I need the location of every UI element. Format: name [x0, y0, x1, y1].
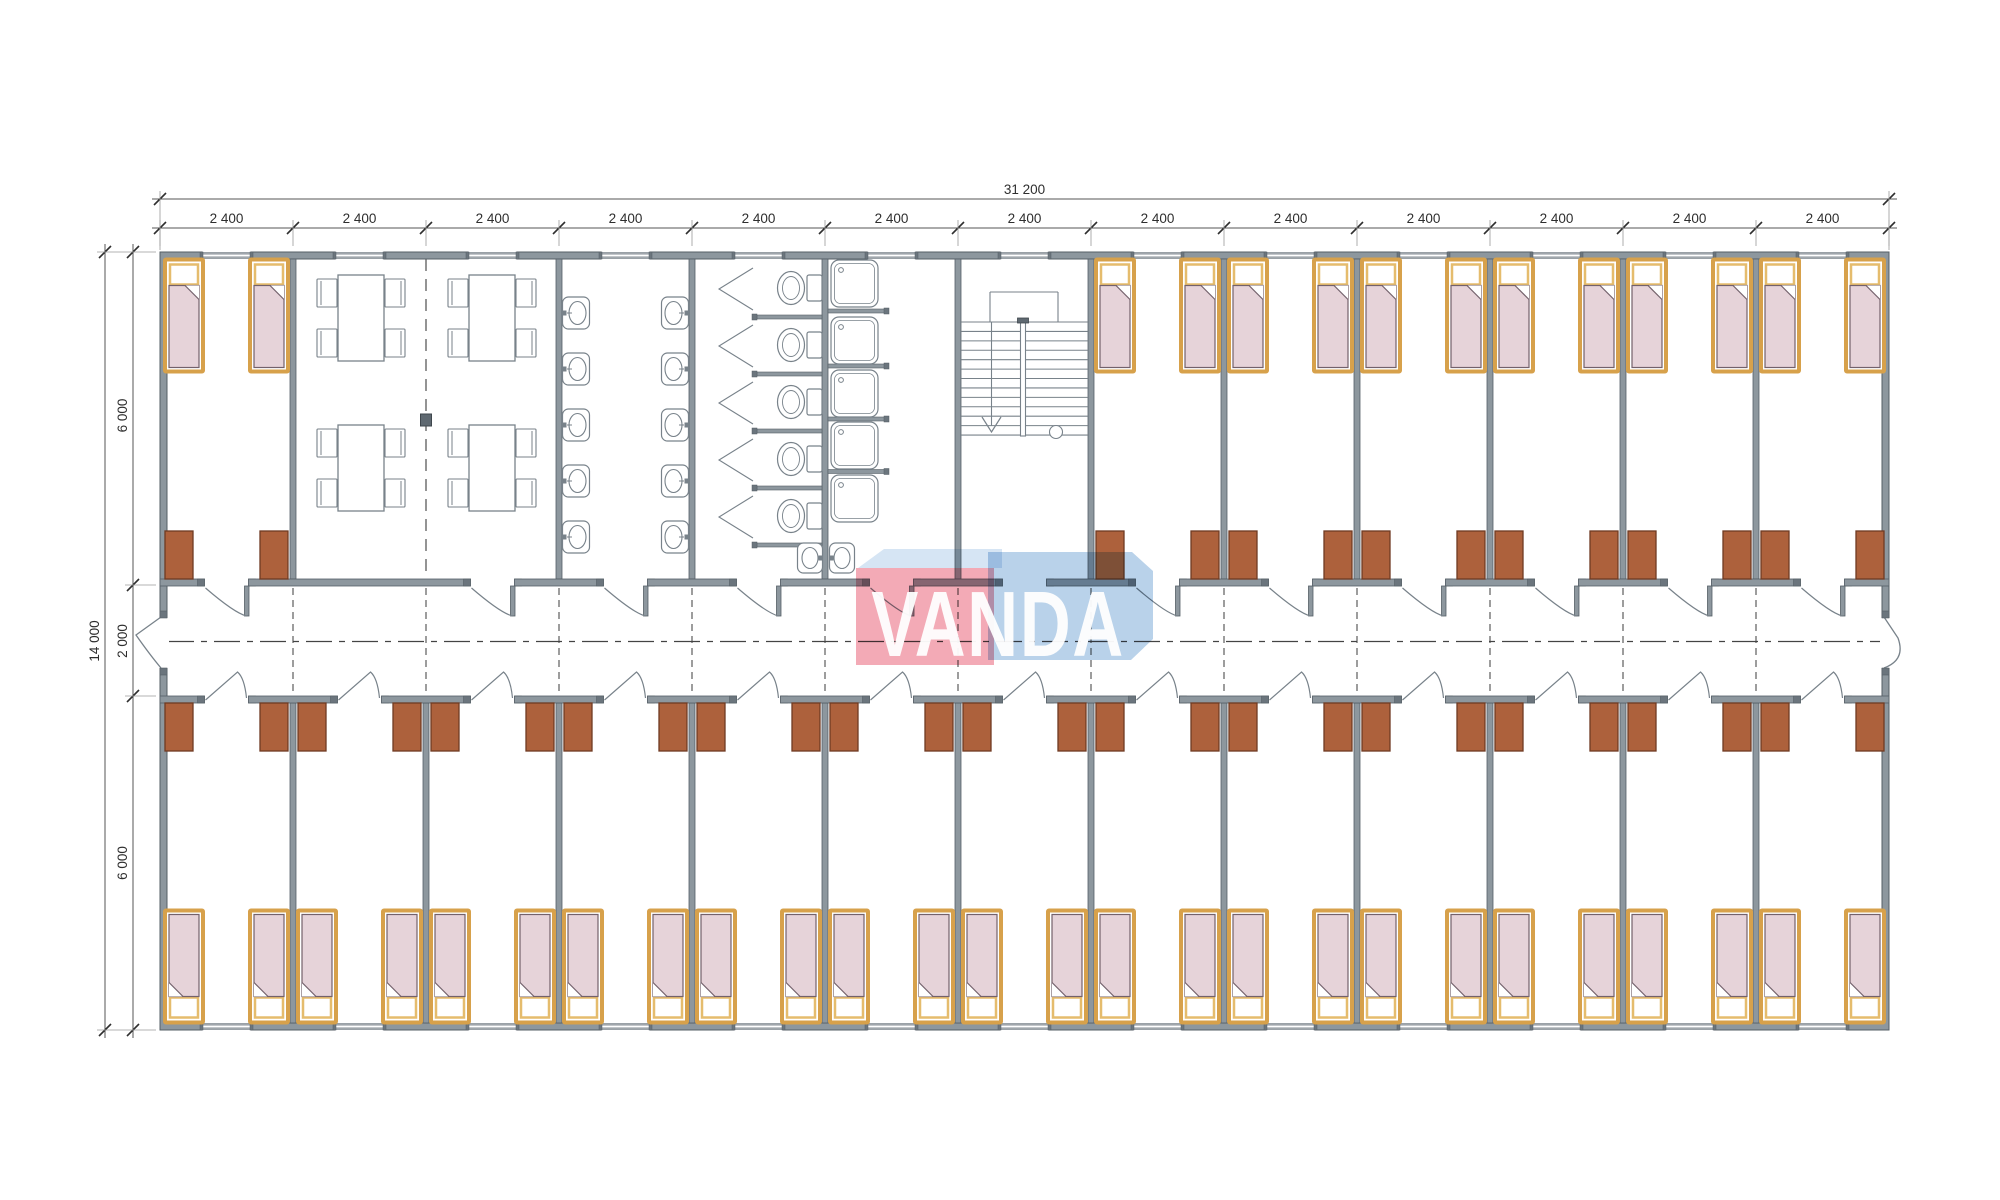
stairs: [962, 292, 1088, 439]
bed: [963, 911, 1001, 1023]
door-swing-arc: [605, 672, 646, 700]
door-swing-arc: [1403, 588, 1444, 616]
door-swing-arc: [1802, 672, 1843, 700]
toilet: [778, 443, 823, 476]
wardrobe: [1590, 531, 1618, 579]
corridor-opening-left: [136, 617, 161, 668]
wardrobe: [963, 703, 991, 751]
dining-table: [317, 275, 405, 361]
door-swing-arc: [738, 588, 779, 616]
bed: [431, 911, 469, 1023]
door-swing-arc: [472, 672, 513, 700]
stall-door: [719, 325, 753, 367]
wardrobe: [1761, 531, 1789, 579]
wardrobe: [1362, 531, 1390, 579]
bed: [782, 911, 820, 1023]
wardrobe: [1590, 703, 1618, 751]
wash-basin: [830, 543, 855, 573]
wash-basin: [563, 297, 590, 329]
door-swing-arc: [1802, 588, 1843, 616]
door-swing-arc: [1536, 588, 1577, 616]
bed: [1580, 911, 1618, 1023]
bed: [250, 911, 288, 1023]
svg-text:6 000: 6 000: [115, 399, 130, 433]
logo-band-shape: [858, 549, 1002, 568]
bed: [165, 260, 203, 372]
stall-door: [719, 496, 753, 538]
bed: [1846, 260, 1884, 372]
wardrobe: [1628, 531, 1656, 579]
door-swing-arc: [605, 588, 646, 616]
vanda-logo: VANDA: [856, 549, 1153, 676]
bed: [516, 911, 554, 1023]
svg-text:2 400: 2 400: [1141, 211, 1175, 226]
wardrobe: [1723, 703, 1751, 751]
wardrobe: [526, 703, 554, 751]
wardrobe: [165, 703, 193, 751]
wash-basin: [563, 465, 590, 497]
wash-basin: [563, 521, 590, 553]
dining-room: [421, 414, 432, 426]
svg-text:31 200: 31 200: [1004, 182, 1045, 197]
svg-text:2 400: 2 400: [742, 211, 776, 226]
bed: [1096, 911, 1134, 1023]
vanda-logo-text: VANDA: [871, 572, 1125, 677]
wardrobe: [1723, 531, 1751, 579]
floor-plan-svg: 31 2002 4002 4002 4002 4002 4002 4002 40…: [0, 0, 2000, 1200]
bed: [1314, 260, 1352, 372]
bed: [250, 260, 288, 372]
stall-door: [719, 268, 753, 310]
wardrobe: [1495, 531, 1523, 579]
dining-table: [317, 425, 405, 511]
svg-text:2 400: 2 400: [1806, 211, 1840, 226]
wash-basin: [563, 409, 590, 441]
bed: [1314, 911, 1352, 1023]
wardrobe: [1229, 703, 1257, 751]
door-swing-arc: [1270, 672, 1311, 700]
bed: [1181, 911, 1219, 1023]
wardrobe: [1096, 703, 1124, 751]
wardrobe: [659, 703, 687, 751]
bed: [383, 911, 421, 1023]
bed: [1628, 911, 1666, 1023]
wardrobe: [1191, 703, 1219, 751]
wardrobe: [1457, 531, 1485, 579]
dining-table: [448, 275, 536, 361]
bed: [1846, 911, 1884, 1023]
wardrobe: [431, 703, 459, 751]
dining-table: [448, 425, 536, 511]
wardrobe: [393, 703, 421, 751]
door-swing-arc: [1669, 672, 1710, 700]
svg-text:2 000: 2 000: [115, 624, 130, 658]
bed: [564, 911, 602, 1023]
bed: [915, 911, 953, 1023]
shower-tray: [831, 260, 878, 307]
wash-basin: [662, 353, 689, 385]
wardrobe: [260, 531, 288, 579]
wash-basin: [563, 353, 590, 385]
wardrobe: [165, 531, 193, 579]
bed: [1362, 911, 1400, 1023]
svg-text:2 400: 2 400: [210, 211, 244, 226]
bed: [298, 911, 336, 1023]
bed: [830, 911, 868, 1023]
svg-text:2 400: 2 400: [609, 211, 643, 226]
bed: [1447, 260, 1485, 372]
wash-basin: [662, 409, 689, 441]
bed: [649, 911, 687, 1023]
wash-basin: [662, 465, 689, 497]
wardrobe: [1362, 703, 1390, 751]
wardrobe: [1761, 703, 1789, 751]
svg-text:2 400: 2 400: [1274, 211, 1308, 226]
stair-newel: [1050, 426, 1063, 439]
door-swing-arc: [1536, 672, 1577, 700]
shower-tray: [831, 317, 878, 364]
stall-door: [719, 439, 753, 481]
door-swing-arc: [206, 588, 247, 616]
wardrobe: [697, 703, 725, 751]
wardrobe: [1628, 703, 1656, 751]
wardrobe: [1324, 531, 1352, 579]
wardrobe: [830, 703, 858, 751]
bed: [1362, 260, 1400, 372]
svg-text:2 400: 2 400: [476, 211, 510, 226]
wardrobe: [564, 703, 592, 751]
svg-text:2 400: 2 400: [875, 211, 909, 226]
bed: [1447, 911, 1485, 1023]
door-swing-arc: [472, 588, 513, 616]
wardrobe: [792, 703, 820, 751]
toilet: [778, 329, 823, 362]
door-swing-arc: [1270, 588, 1311, 616]
bed: [1495, 911, 1533, 1023]
bed: [697, 911, 735, 1023]
wash-basin: [662, 521, 689, 553]
bed: [1229, 260, 1267, 372]
bed: [1048, 911, 1086, 1023]
toilet: [778, 500, 823, 533]
wardrobe: [260, 703, 288, 751]
svg-text:2 400: 2 400: [1540, 211, 1574, 226]
door-swing-arc: [206, 672, 247, 700]
bed: [1229, 911, 1267, 1023]
door-swing-arc: [738, 672, 779, 700]
bed: [1761, 911, 1799, 1023]
wardrobe: [1457, 703, 1485, 751]
bed: [1495, 260, 1533, 372]
svg-text:2 400: 2 400: [1407, 211, 1441, 226]
shower-tray: [831, 370, 878, 417]
bed: [1628, 260, 1666, 372]
bed: [1713, 911, 1751, 1023]
bed: [1761, 260, 1799, 372]
door-swing-arc: [1137, 672, 1178, 700]
svg-text:14 000: 14 000: [87, 620, 102, 661]
bed: [1713, 260, 1751, 372]
wardrobe: [1495, 703, 1523, 751]
wardrobe: [925, 703, 953, 751]
wardrobe: [1191, 531, 1219, 579]
svg-text:2 400: 2 400: [343, 211, 377, 226]
floor-plan-canvas: 31 2002 4002 4002 4002 4002 4002 4002 40…: [0, 0, 2000, 1200]
svg-text:2 400: 2 400: [1008, 211, 1042, 226]
stall-door: [719, 382, 753, 424]
wardrobe: [298, 703, 326, 751]
svg-text:2 400: 2 400: [1673, 211, 1707, 226]
bed: [1096, 260, 1134, 372]
toilet: [778, 272, 823, 305]
shower-tray: [831, 475, 878, 522]
door-swing-arc: [1669, 588, 1710, 616]
wardrobe: [1856, 531, 1884, 579]
wardrobe: [1324, 703, 1352, 751]
shower-tray: [831, 422, 878, 469]
bed: [1580, 260, 1618, 372]
wardrobe: [1229, 531, 1257, 579]
wardrobe: [1058, 703, 1086, 751]
bed: [165, 911, 203, 1023]
door-swing-arc: [1403, 672, 1444, 700]
bed: [1181, 260, 1219, 372]
door-swing-arc: [339, 672, 380, 700]
svg-text:6 000: 6 000: [115, 846, 130, 880]
toilet: [778, 386, 823, 419]
wash-basin: [798, 543, 823, 573]
wardrobe: [1856, 703, 1884, 751]
wash-basin: [662, 297, 689, 329]
